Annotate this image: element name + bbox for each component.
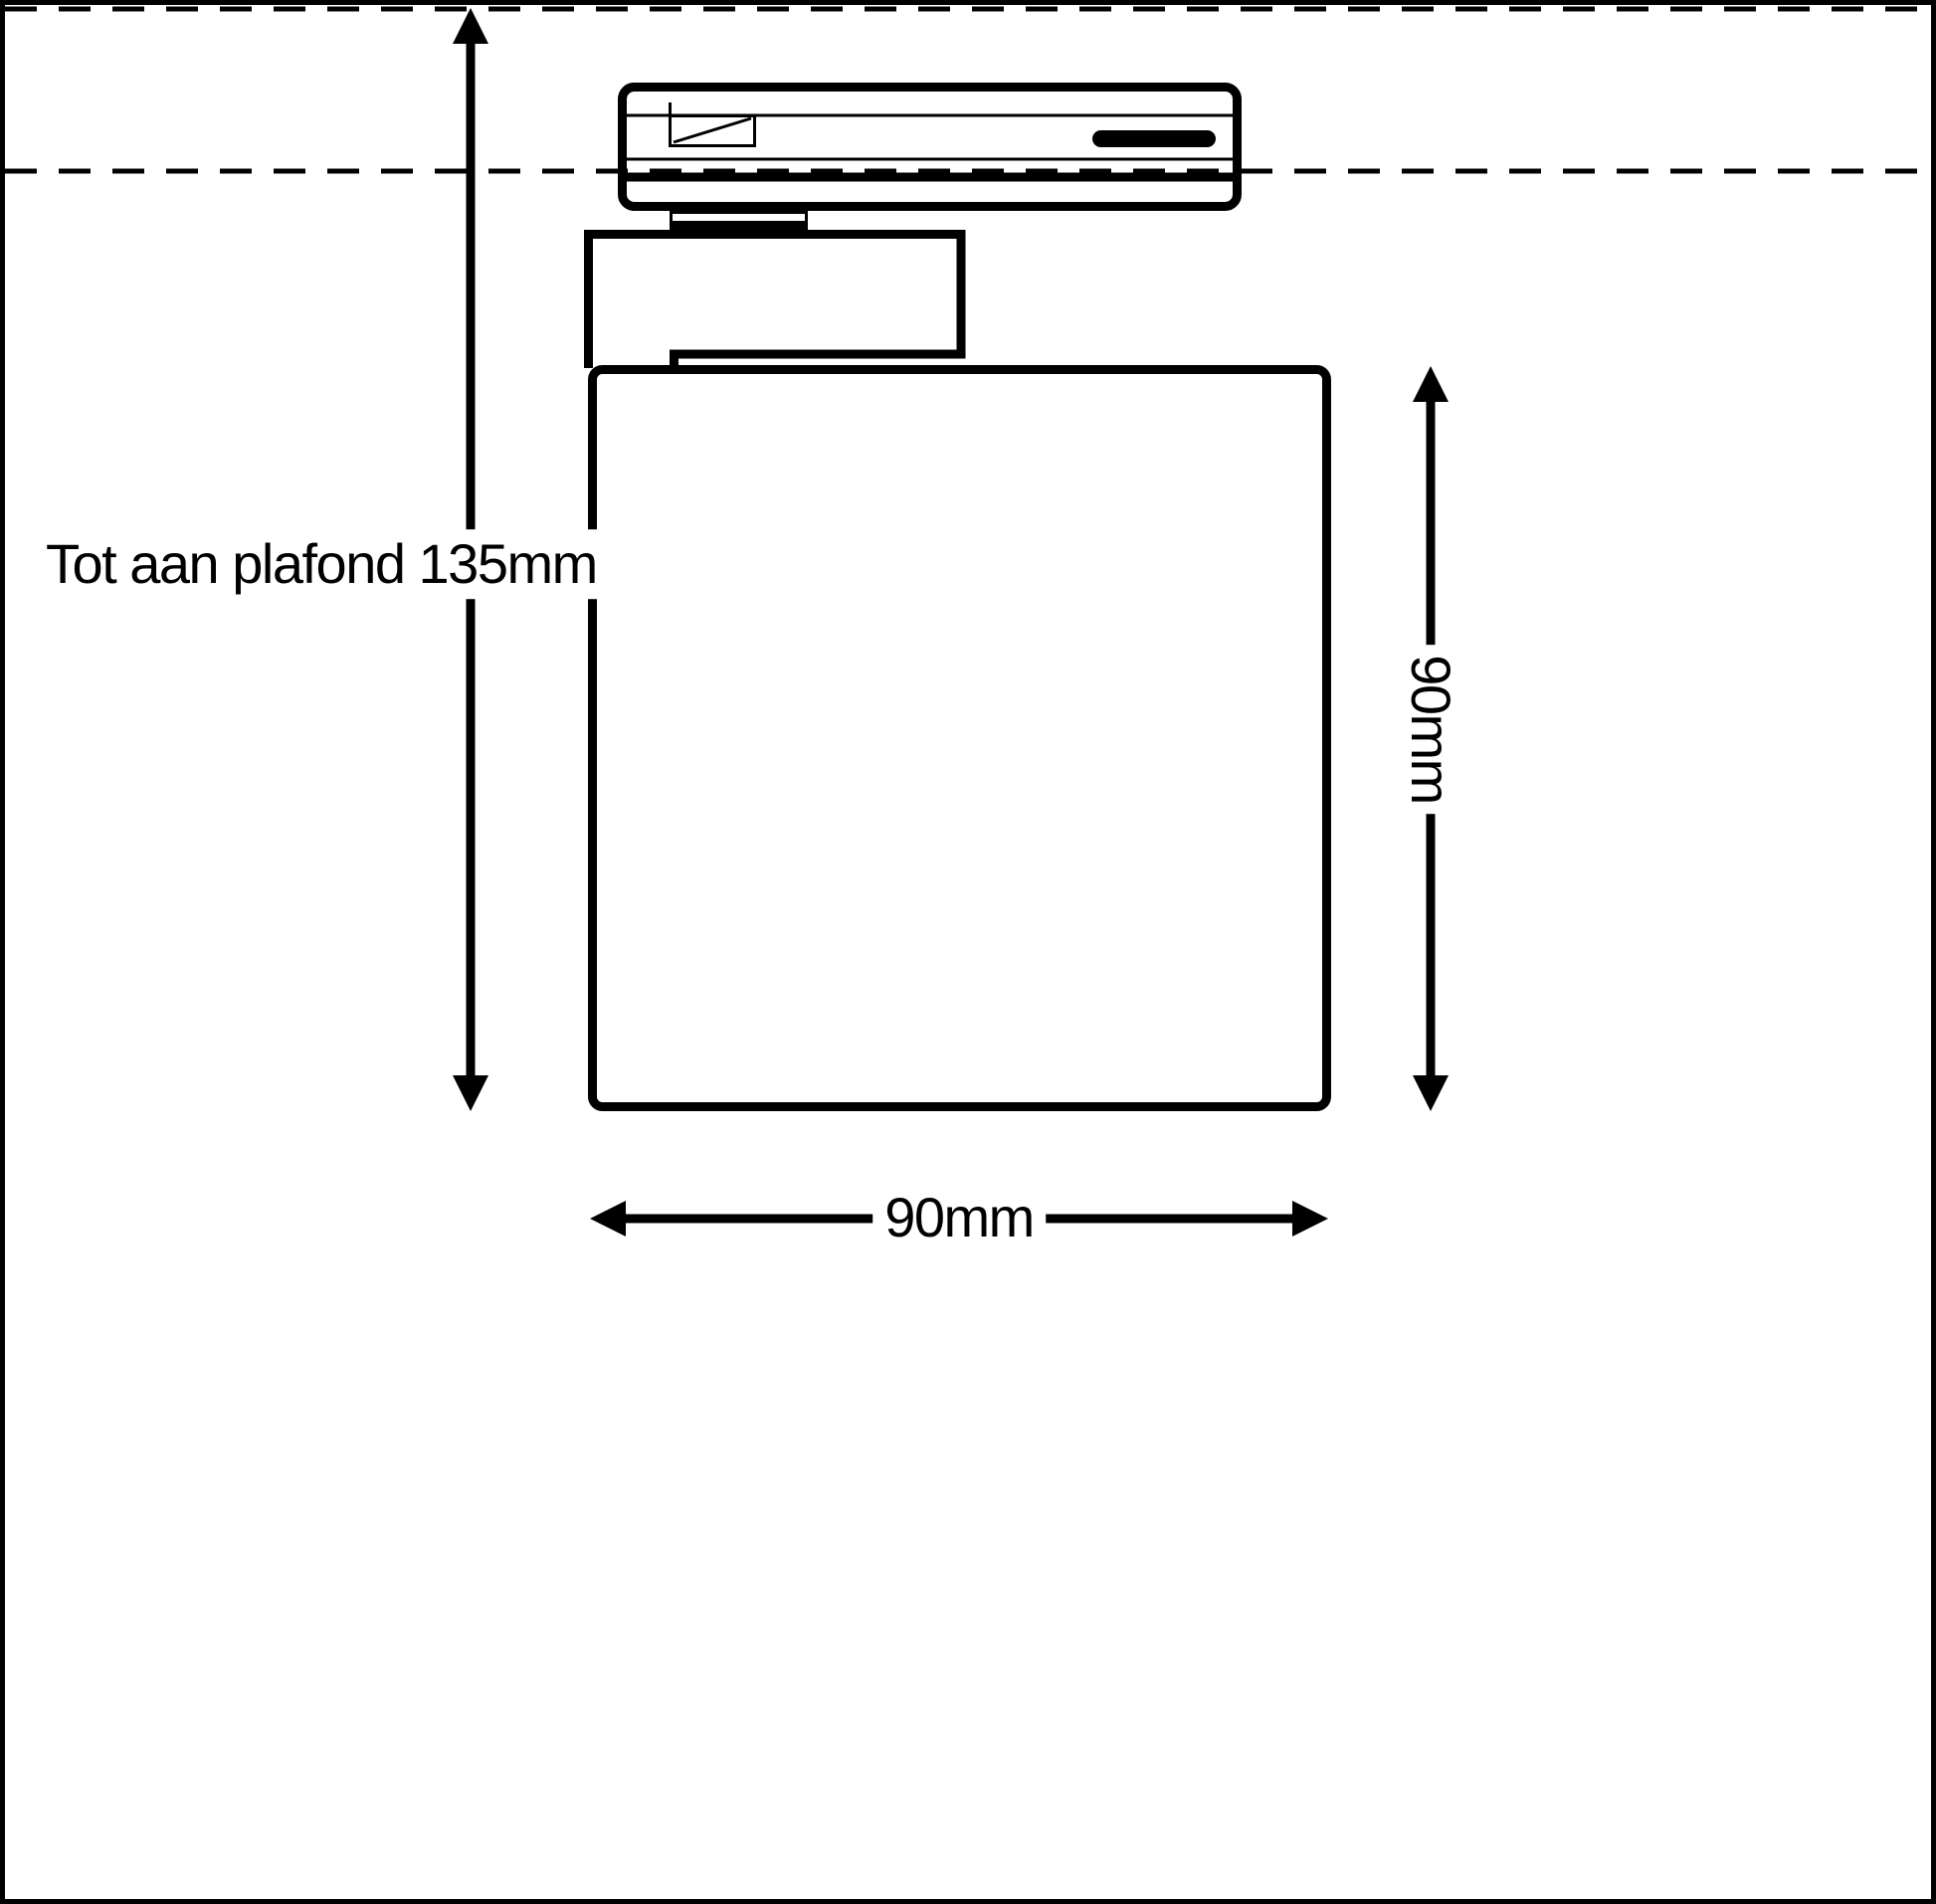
height-dimension-label: 90mm: [1398, 645, 1463, 814]
fixture-line-drawing: [0, 0, 1936, 1904]
track-adapter-housing: [589, 235, 962, 369]
ceiling-distance-label: Tot aan plafond 135mm: [42, 529, 601, 599]
track-connector-tab: [670, 213, 808, 232]
lamp-shade: [593, 370, 1327, 1107]
dimension-diagram: Tot aan plafond 135mm 90mm 90mm: [0, 0, 1936, 1904]
track-rail: [622, 88, 1238, 207]
rail-contact-pill: [1092, 130, 1216, 147]
width-dimension-label: 90mm: [872, 1185, 1046, 1250]
